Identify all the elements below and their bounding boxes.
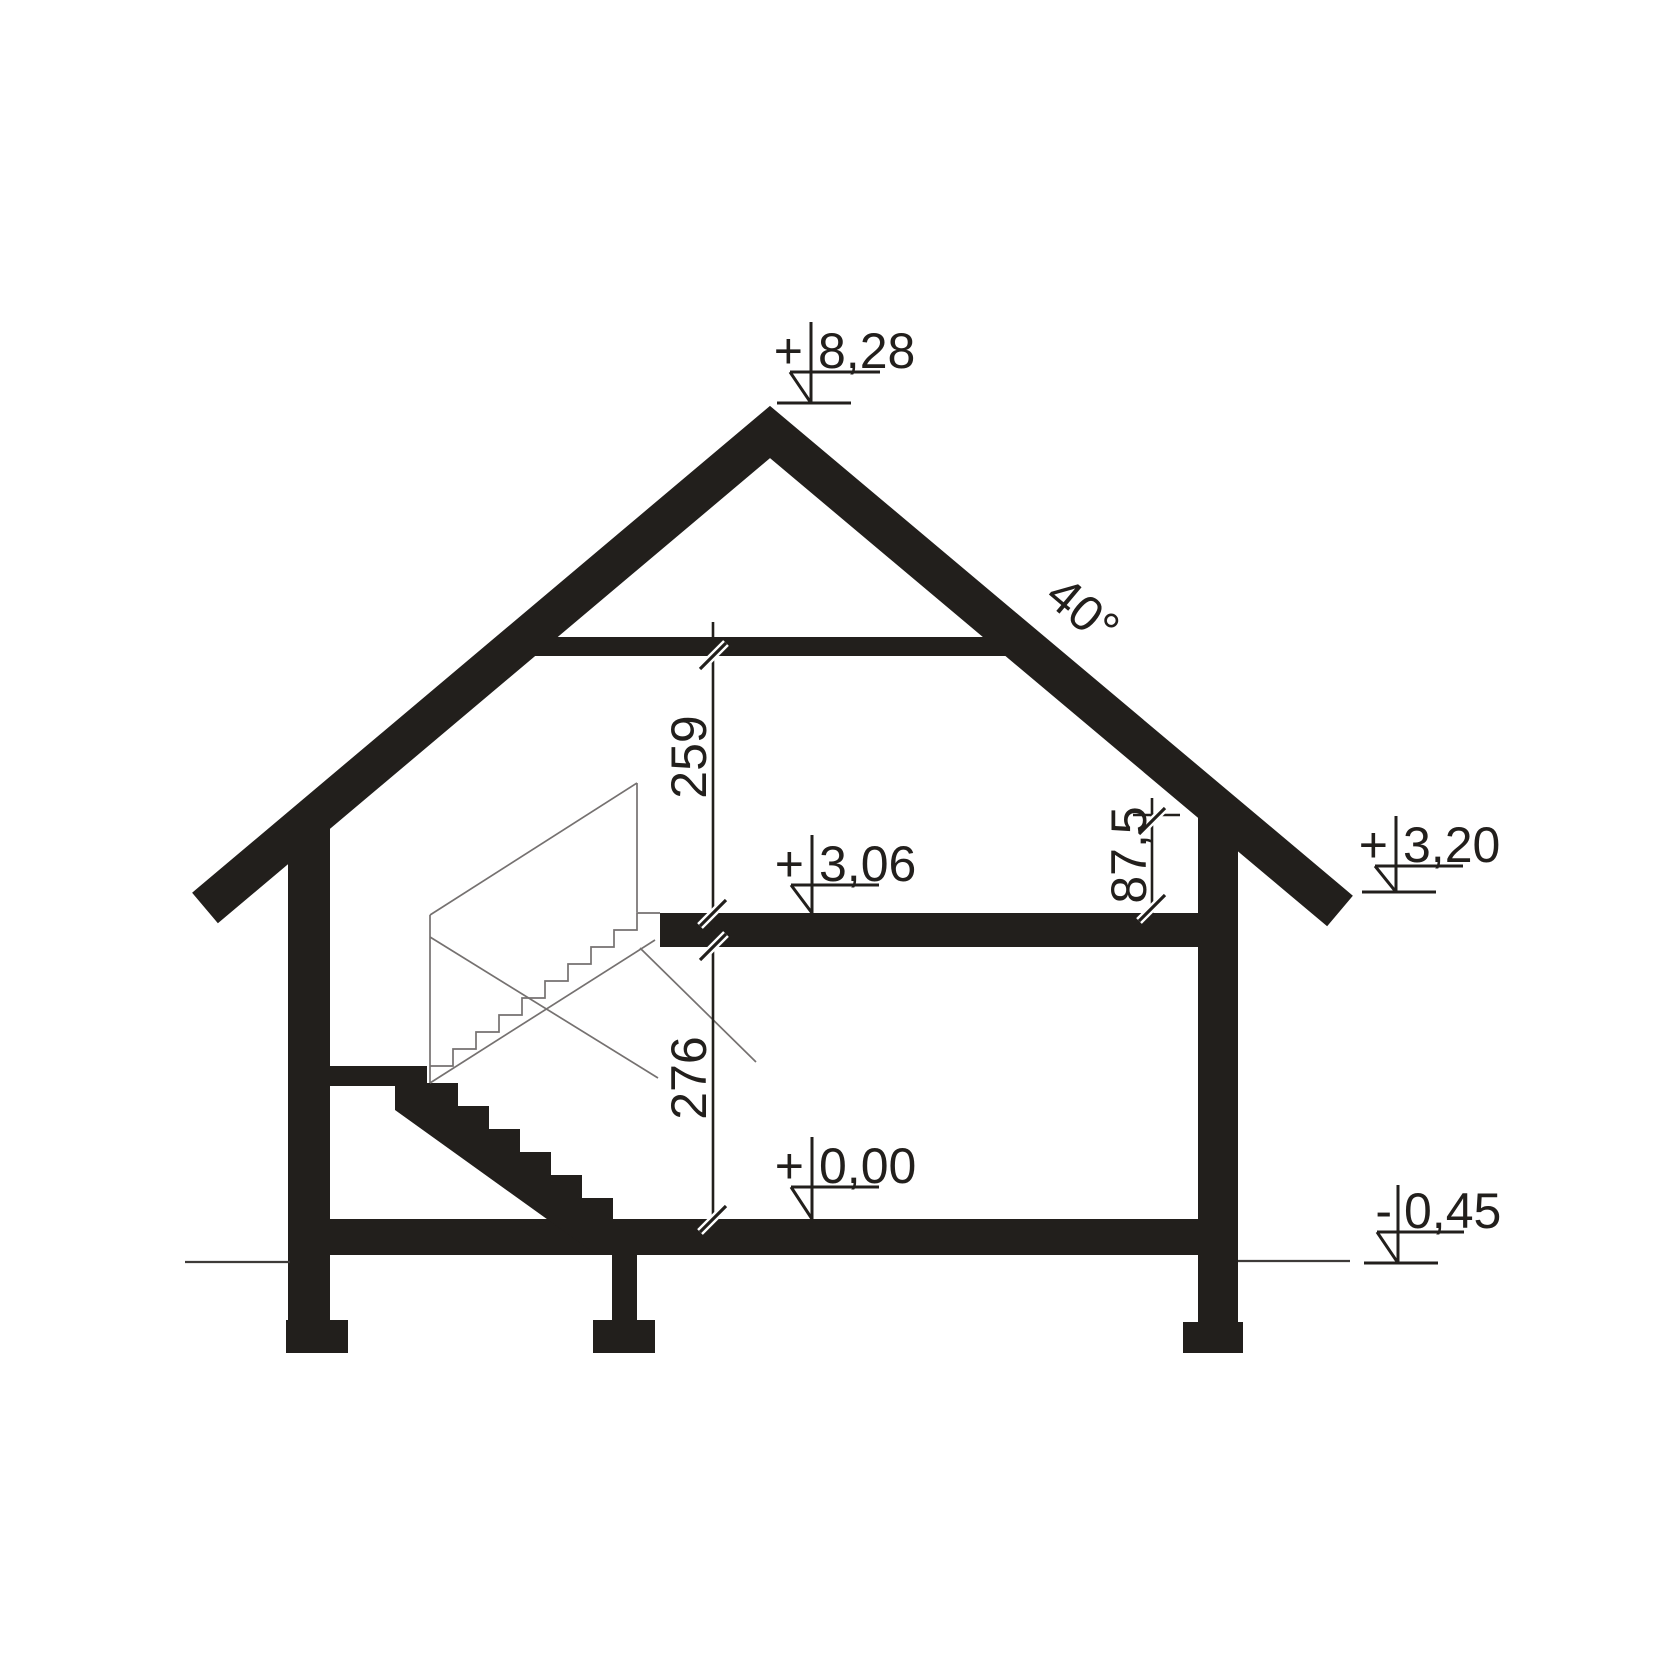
- stair-stringer-top-line: [430, 783, 637, 915]
- stair-cross-line-2: [430, 940, 655, 1083]
- stair-upper-flight-steps: [430, 913, 660, 1066]
- house-cross-section-svg: 259 276 87,5 40° + 8,28 + 3,06: [0, 0, 1680, 1680]
- level-marker-ridge: + 8,28: [774, 322, 916, 403]
- middle-foundation-pier: [612, 1250, 637, 1322]
- dimension-text-attic-height: 259: [661, 715, 717, 798]
- left-footing: [286, 1320, 348, 1353]
- right-footing: [1183, 1322, 1243, 1353]
- roof-rafters: [205, 432, 1340, 911]
- section-drawing-canvas: 259 276 87,5 40° + 8,28 + 3,06: [0, 0, 1680, 1680]
- knee-wall-dimension: 87,5: [1101, 798, 1180, 921]
- level-marker-eaves: + 3,20: [1359, 816, 1501, 892]
- level-marker-ground-floor: + 0,00: [775, 1137, 917, 1219]
- dimension-text-ground-floor-height: 276: [661, 1036, 717, 1119]
- ground-floor-slab: [288, 1219, 1238, 1255]
- stair-cross-line-1: [430, 937, 658, 1078]
- collar-beam: [497, 637, 1033, 656]
- level-marker-attic-floor: + 3,06: [775, 835, 917, 913]
- middle-footing: [593, 1320, 655, 1353]
- level-marker-terrain: - 0,45: [1364, 1183, 1501, 1263]
- dimension-text-knee-wall: 87,5: [1101, 806, 1157, 903]
